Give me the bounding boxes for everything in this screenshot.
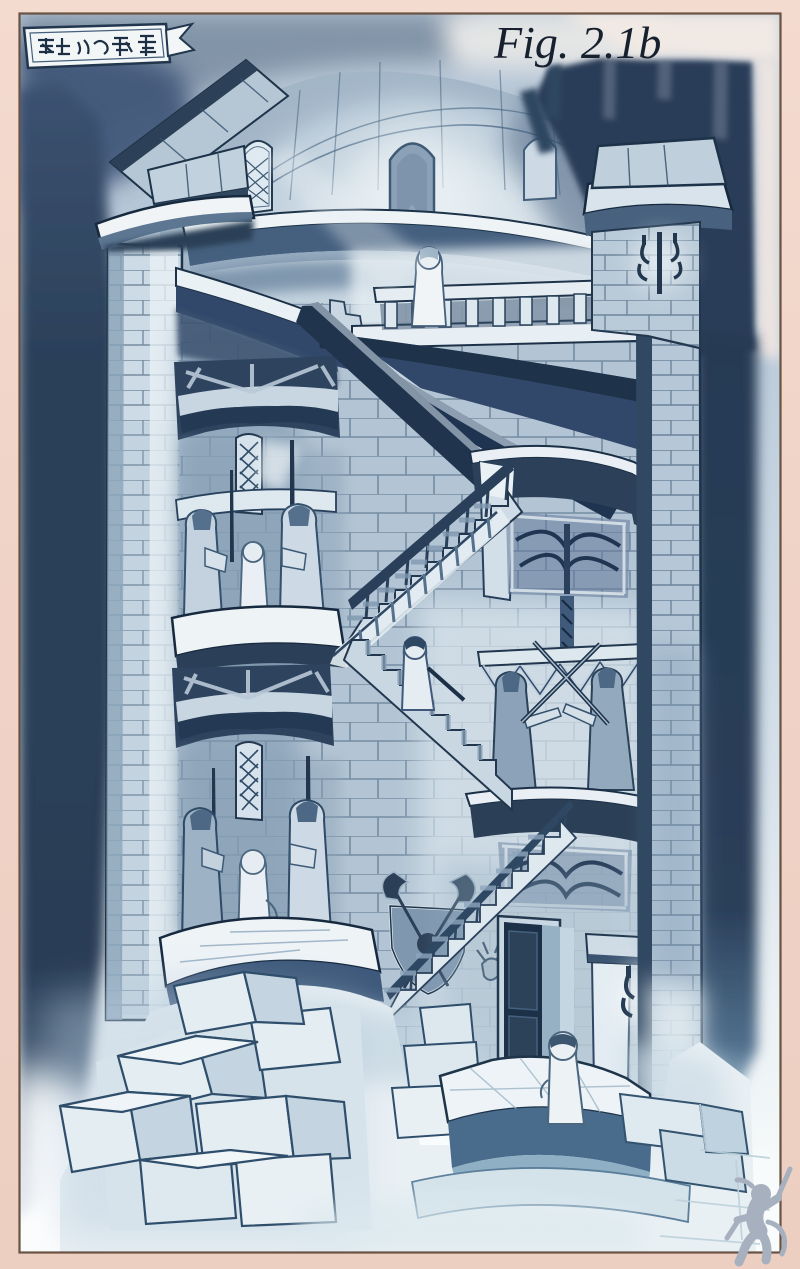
svg-text:Fig. 2.1b: Fig. 2.1b: [493, 17, 661, 68]
